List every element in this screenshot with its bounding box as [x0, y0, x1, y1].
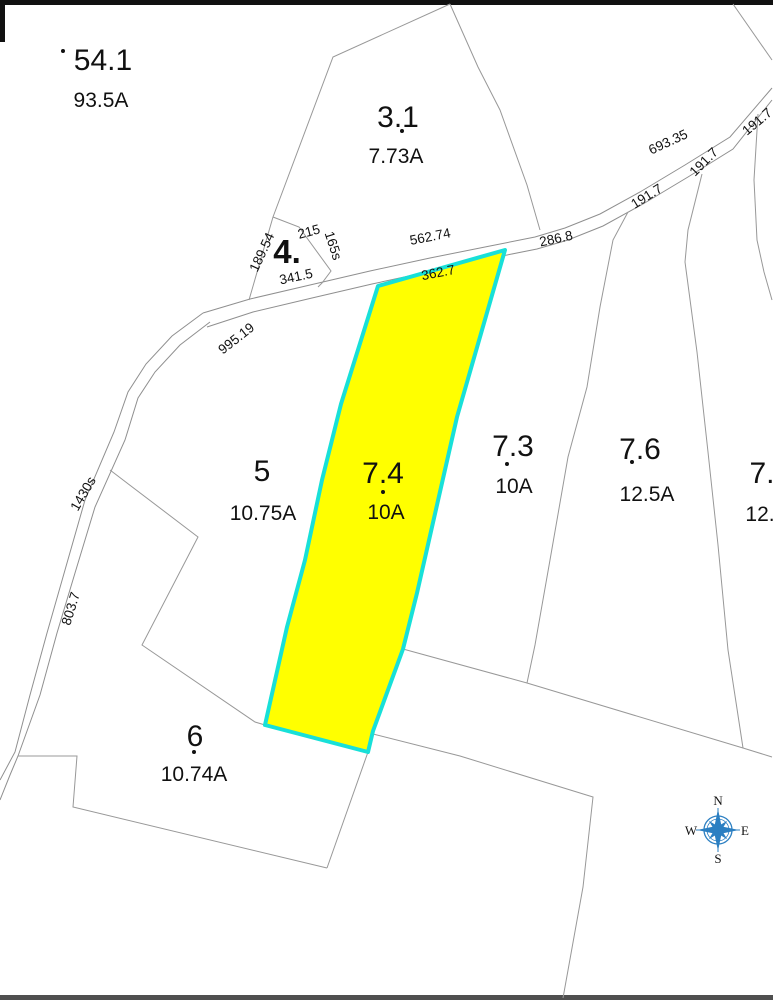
- compass-north-label: N: [713, 793, 723, 808]
- dimension-label: 562.74: [408, 225, 452, 248]
- dimension-label: 165s: [322, 229, 345, 262]
- parcel-label-4: 4.: [273, 233, 301, 270]
- parcel-acreage-54-1: 93.5A: [74, 89, 129, 112]
- parcel-acreage-6: 10.74A: [161, 763, 228, 786]
- dimension-label: 191.7: [687, 145, 722, 180]
- sheet-left-border: [0, 0, 5, 42]
- compass-south-label: S: [714, 851, 721, 866]
- compass-west-label: W: [685, 823, 698, 838]
- parcel-acreage-7-6: 12.5A: [620, 483, 675, 506]
- parcel-label-7-x: 7.: [749, 457, 773, 490]
- dimension-label: 191.7: [739, 105, 773, 138]
- dimension-label: 215: [296, 221, 322, 241]
- dimension-label: 286.8: [538, 228, 574, 250]
- parcel-acreage-7-3: 10A: [495, 475, 532, 498]
- compass-east-label: E: [741, 823, 749, 838]
- parcel-label-6: 6: [187, 720, 204, 753]
- dimension-label: 191.7: [628, 181, 665, 212]
- parcel-label-54-1: 54.1: [74, 44, 132, 77]
- parcel-label-7-3: 7.3: [492, 430, 534, 463]
- dimension-label: 803.7: [59, 590, 83, 627]
- parcel-acreage-7-4: 10A: [367, 501, 404, 524]
- parcel-label-3-1: 3.1: [377, 101, 419, 134]
- sheet-bottom-border: [0, 995, 773, 1000]
- parcel-acreage-3-1: 7.73A: [369, 145, 424, 168]
- compass-rose: N E S W: [685, 793, 749, 866]
- dimension-label: 1430s: [67, 474, 99, 514]
- parcel-acreage-5: 10.75A: [230, 502, 297, 525]
- parcel-label-7-6: 7.6: [619, 433, 661, 466]
- sheet-top-border: [0, 0, 773, 5]
- parcel-map: 54.1 93.5A 3.1 7.73A 4. 5 10.75A 7.4 10A…: [0, 0, 773, 1000]
- parcel-acreage-7-x: 12.: [745, 503, 773, 526]
- dimension-label: 995.19: [215, 320, 257, 357]
- parcel-label-5: 5: [254, 455, 271, 488]
- parcel-label-7-4: 7.4: [362, 457, 404, 490]
- compass-star: [697, 809, 739, 851]
- dimension-label: 693.35: [646, 126, 690, 157]
